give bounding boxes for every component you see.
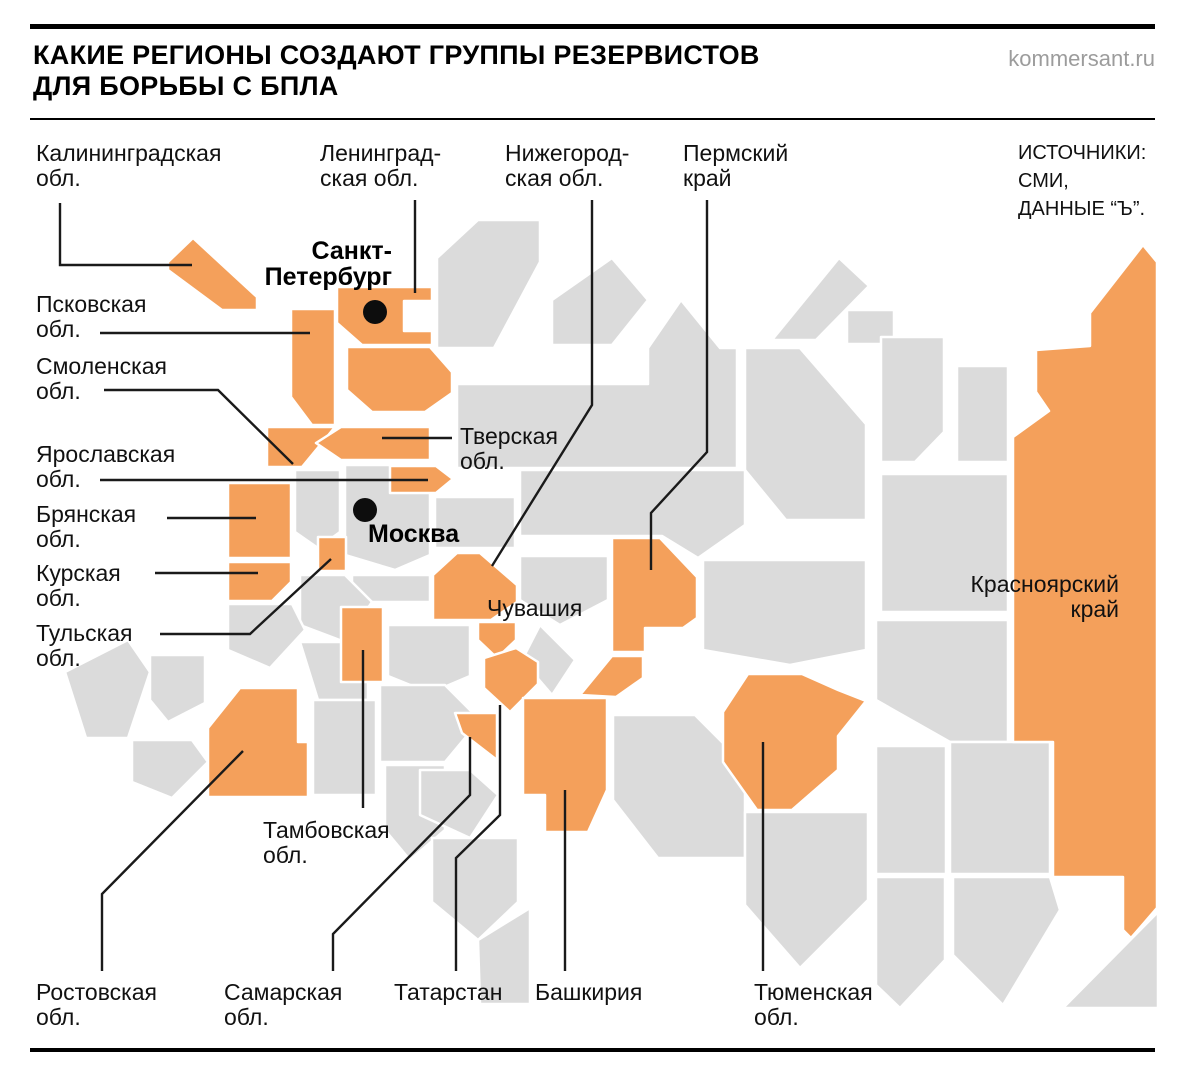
map-tile [150, 655, 205, 722]
map-tile [876, 877, 945, 1008]
map-tile [1063, 912, 1158, 1008]
city-label-moscow: Москва [368, 521, 459, 547]
map-tile [313, 700, 376, 795]
region-shape-kaliningrad [168, 238, 257, 310]
region-label-tver: Тверская обл. [460, 424, 558, 474]
map-tile [703, 560, 866, 665]
map-tile [950, 742, 1050, 874]
region-shape-novgorod-wedge [347, 347, 452, 412]
region-shape-bryansk [228, 483, 291, 558]
region-label-tambov: Тамбовская обл. [263, 818, 390, 868]
region-label-tatarstan: Татарстан [394, 980, 502, 1005]
region-shape-udmurtia-band [580, 656, 643, 697]
region-label-samara: Самарская обл. [224, 980, 342, 1030]
region-shape-tver [316, 427, 430, 460]
region-label-krasnoyarsk: Красноярский край [935, 572, 1119, 622]
map-tile [957, 366, 1008, 462]
city-dot-moscow [353, 498, 377, 522]
region-label-perm: Пермский край [683, 141, 788, 191]
region-label-tyumen: Тюменская обл. [754, 980, 873, 1030]
region-label-bryansk: Брянская обл. [36, 502, 136, 552]
map-tile [388, 625, 470, 693]
map-tile [745, 348, 866, 520]
map-tile [228, 604, 305, 668]
city-dot-spb [363, 300, 387, 324]
map-tile [876, 746, 946, 874]
region-label-pskov: Псковская обл. [36, 292, 146, 342]
region-label-tula: Тульская обл. [36, 621, 132, 671]
region-shape-rostov [208, 688, 308, 797]
region-label-kaliningrad: Калининградская обл. [36, 141, 221, 191]
region-shape-pskov [291, 309, 335, 425]
region-shape-kursk [228, 562, 291, 601]
region-shape-tyumen [723, 674, 866, 810]
region-label-bashkiria: Башкирия [535, 980, 642, 1005]
region-label-chuvashia: Чувашия [487, 596, 582, 621]
map-tile [953, 877, 1060, 1005]
region-label-kursk: Курская обл. [36, 561, 121, 611]
map-tile [132, 740, 208, 798]
map-tile [437, 220, 540, 348]
region-label-rostov: Ростовская обл. [36, 980, 157, 1030]
region-label-nizhny-novgorod: Нижегород- ская обл. [505, 141, 629, 191]
region-shape-perm [612, 538, 697, 652]
map-tile [552, 258, 648, 345]
bottom-rule [30, 1048, 1155, 1052]
leader-kaliningrad [60, 203, 192, 265]
infographic: КАКИЕ РЕГИОНЫ СОЗДАЮТ ГРУППЫ РЕЗЕРВИСТОВ… [0, 0, 1184, 1080]
city-label-spb: Санкт- Петербург [252, 238, 392, 290]
map-tile [876, 620, 1008, 742]
region-label-smolensk: Смоленская обл. [36, 354, 167, 404]
region-label-yaroslavl: Ярославская обл. [36, 442, 175, 492]
region-label-leningrad: Ленинград- ская обл. [320, 141, 441, 191]
map-tile [881, 337, 944, 462]
